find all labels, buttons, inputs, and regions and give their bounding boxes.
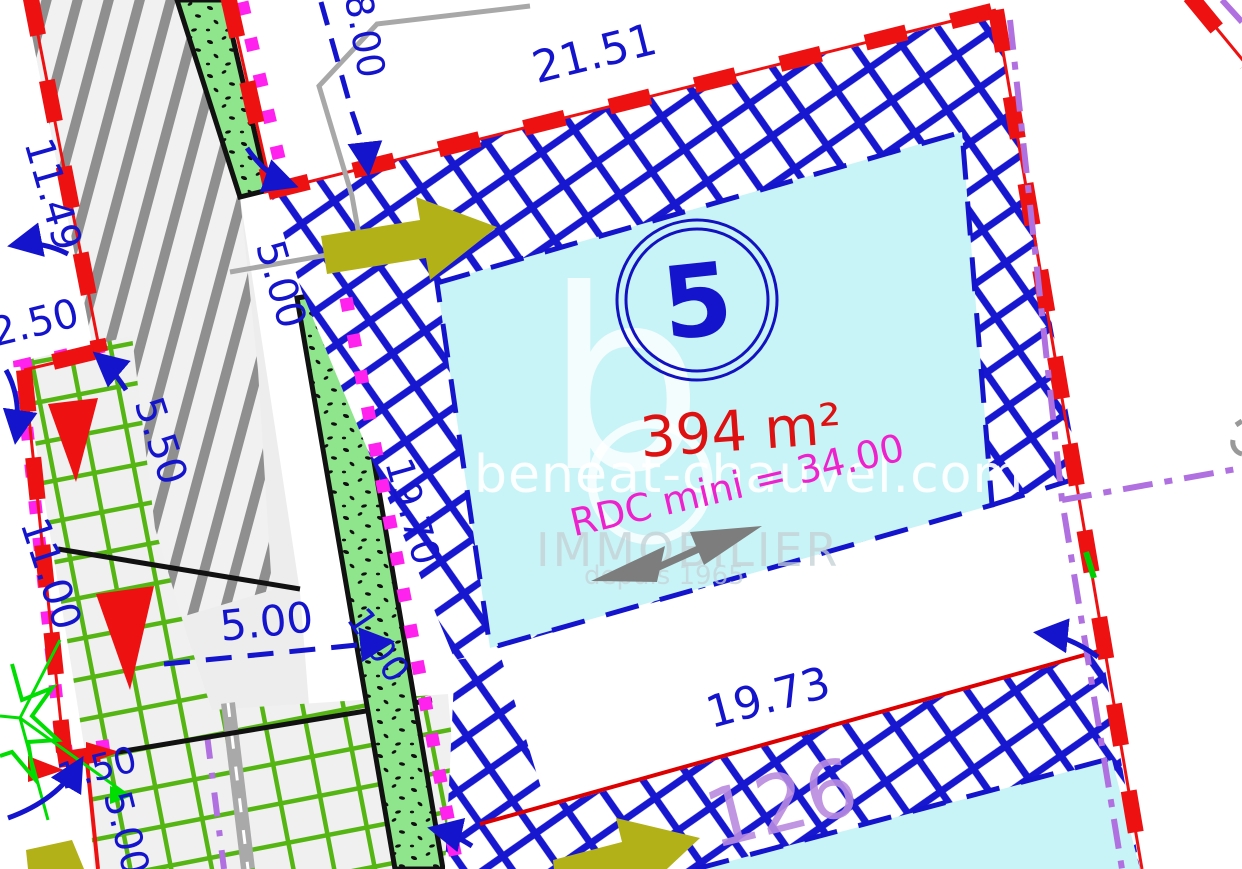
dim-access-width: 5.00 <box>217 592 315 651</box>
plot-plan-svg: b beneat-chauvel.com IMMOBILIER depuis 1… <box>0 0 1242 869</box>
lot5-number: 5 <box>656 240 737 364</box>
survey-plan-canvas: b beneat-chauvel.com IMMOBILIER depuis 1… <box>0 0 1242 869</box>
